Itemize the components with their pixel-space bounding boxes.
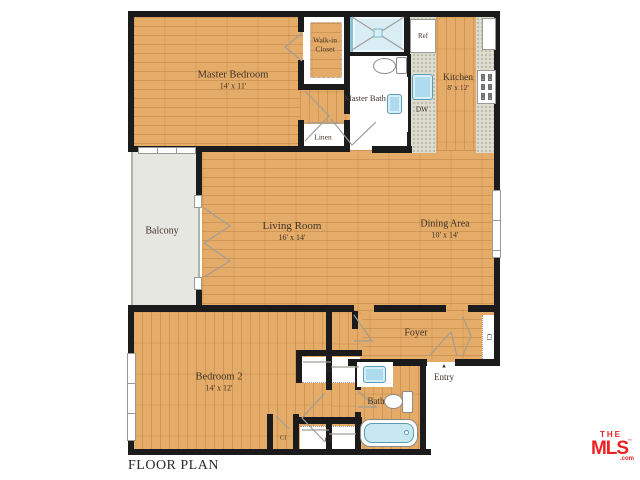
balcony-door-frame [194,277,202,290]
label-bath: Bath [368,396,385,406]
wall [128,11,134,152]
master-toilet-bowl [373,58,396,74]
window [492,190,501,258]
label-entry-arrow: ▲ [441,364,447,371]
wall [128,305,354,312]
wall [420,362,426,455]
label-kitchen: Kitchen 8' x 12' [443,73,473,93]
window [138,147,196,154]
stove-fixture [477,70,496,104]
wall [494,11,500,366]
label-linen: Linen [314,134,332,143]
window [127,353,136,441]
master-toilet-tank [396,57,407,74]
wall [468,305,500,312]
bathtub-drain [404,430,409,435]
wall [344,120,350,148]
mls-logo: THE MLS™ .com [588,431,634,462]
kitchen-corner-counter [482,18,496,50]
balcony-door-frame [194,195,202,208]
label-foyer: Foyer [404,327,427,339]
label-small-closet: Cl [280,434,286,441]
wall [267,414,273,455]
label-balcony: Balcony [145,225,178,237]
wall [298,120,304,148]
label-walk-in-closet: Walk-in Closet [304,36,346,53]
label-living-room: Living Room 16' x 14' [263,220,322,242]
wall [128,449,431,455]
label-dishwasher: DW [416,106,429,115]
bath-toilet-tank [402,391,413,413]
wall [346,52,406,56]
wall [196,146,202,195]
label-wide-closet: Cl [325,436,332,444]
wall [298,84,350,90]
page-title: FLOOR PLAN [128,458,219,474]
label-dining-area: Dining Area 10' x 14' [420,219,469,240]
floor-plan-canvas: Master Bedroom 14' x 11' Walk-in Closet … [0,0,640,480]
label-refrigerator: Ref [418,32,428,40]
wall [196,290,202,312]
label-hall-closet: Cl [326,366,333,374]
label-foyer-closet: Cl [485,334,493,341]
shower-fixture [350,14,407,55]
wall [128,11,500,17]
label-entry: Entry [434,372,454,382]
label-master-bedroom: Master Bedroom 14' x 11' [198,69,269,90]
wall [296,350,362,356]
wall [352,311,358,329]
label-bedroom-2: Bedroom 2 14' x 12' [196,371,243,392]
wall [455,359,500,366]
wall [372,146,412,153]
wall [296,350,302,383]
wall [374,305,446,312]
wall [293,417,362,424]
dishwasher-sink [412,74,433,100]
bath-toilet-bowl [384,394,403,409]
master-sink [387,94,402,114]
label-master-bath: Master Bath [344,94,386,104]
bath-sink [363,366,386,383]
wall [298,11,304,32]
